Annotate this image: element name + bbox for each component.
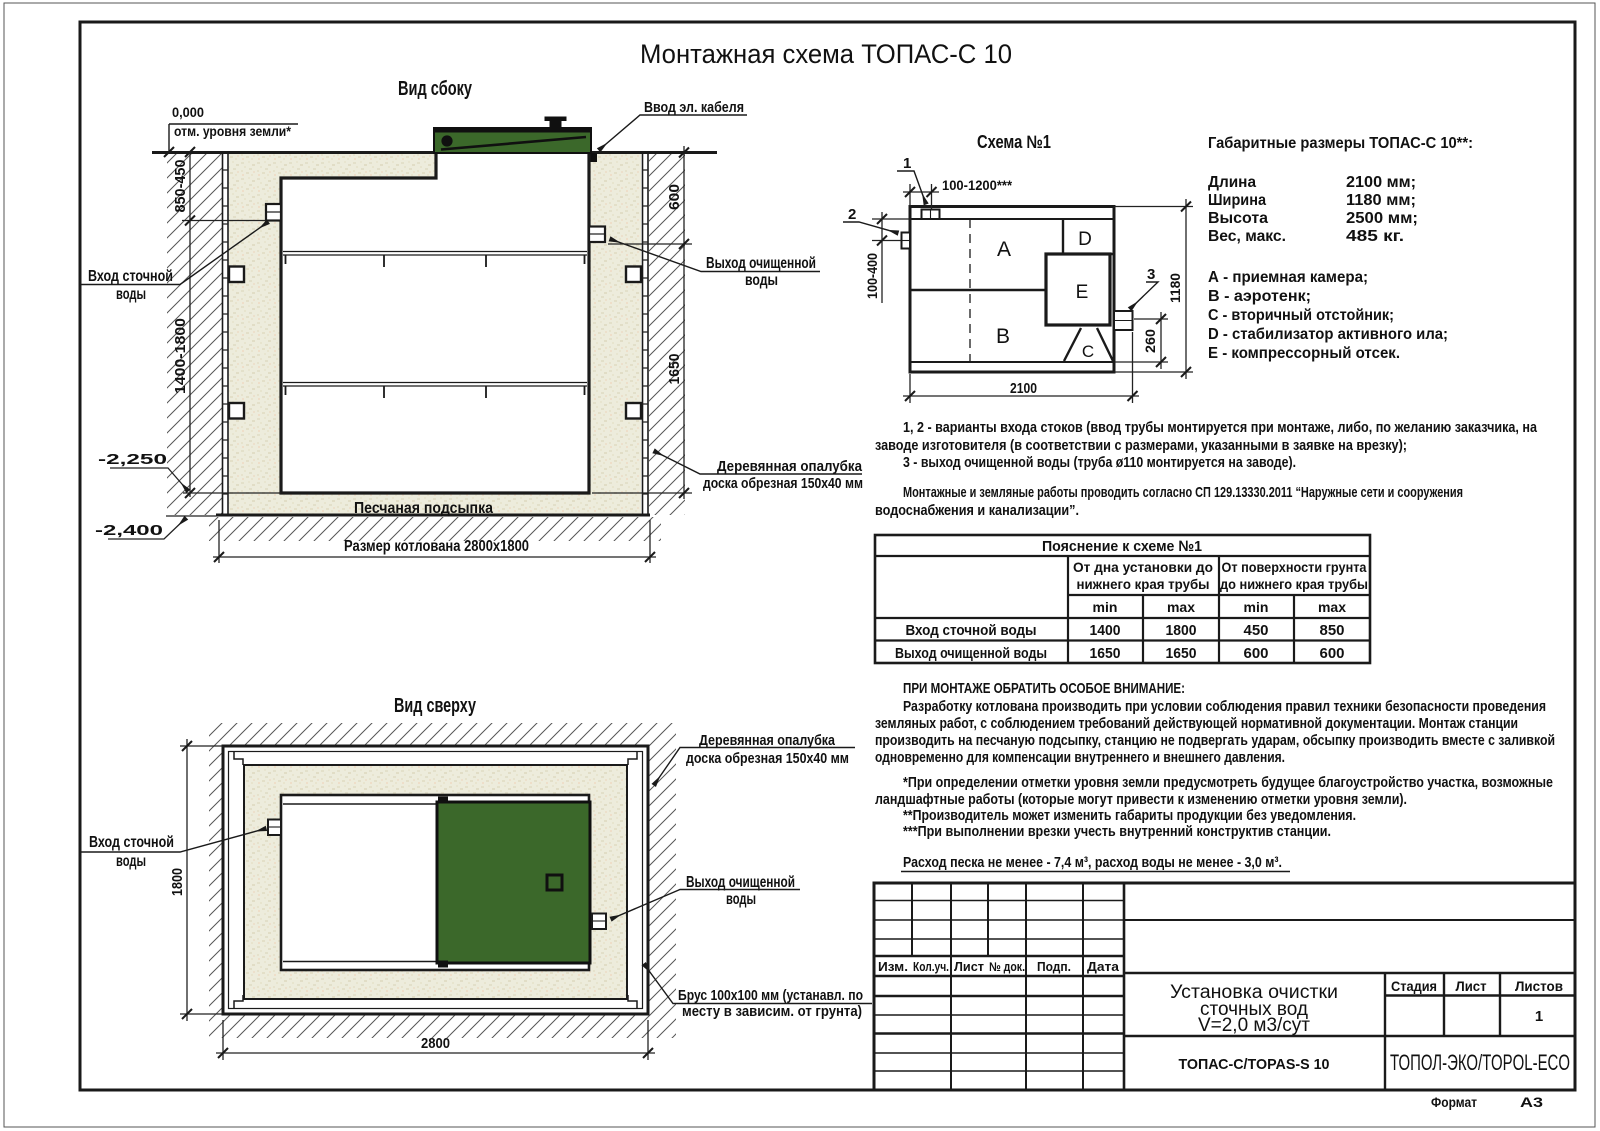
svg-text:Ширина: Ширина [1208, 192, 1266, 209]
svg-text:Монтажная схема ТОПАС-С 10: Монтажная схема ТОПАС-С 10 [640, 39, 1012, 69]
svg-text:Габаритные размеры ТОПАС-С 10*: Габаритные размеры ТОПАС-С 10**: [1208, 135, 1473, 152]
svg-text:100-400: 100-400 [864, 253, 880, 299]
svg-text:*При определении отметки уровн: *При определении отметки уровня земли пр… [903, 774, 1553, 791]
svg-text:А3: А3 [1520, 1094, 1543, 1110]
svg-text:1: 1 [1535, 1008, 1543, 1025]
svg-text:Расход песка не менее - 7,4 м³: Расход песка не менее - 7,4 м³, расход в… [903, 854, 1282, 871]
svg-text:Размер котлована 2800х1800: Размер котлована 2800х1800 [344, 538, 529, 555]
svg-text:Схема №1: Схема №1 [977, 132, 1051, 152]
svg-text:Вход сточной воды: Вход сточной воды [906, 622, 1037, 639]
svg-text:1180 мм;: 1180 мм; [1346, 192, 1416, 209]
svg-text:E: E [1076, 282, 1089, 303]
svg-text:Вид сверху: Вид сверху [394, 695, 477, 717]
svg-text:Формат: Формат [1431, 1094, 1477, 1110]
svg-text:2800: 2800 [421, 1035, 450, 1052]
svg-text:В - аэротенк;: В - аэротенк; [1208, 288, 1311, 305]
svg-text:850: 850 [1320, 622, 1345, 639]
svg-text:1400: 1400 [1090, 622, 1121, 639]
svg-text:воды: воды [726, 891, 756, 908]
svg-text:Выход очищенной: Выход очищенной [706, 255, 816, 272]
svg-text:A: A [997, 238, 1011, 261]
svg-text:C: C [1082, 342, 1094, 361]
svg-text:доска обрезная 150х40 мм: доска обрезная 150х40 мм [703, 475, 863, 492]
svg-text:1650: 1650 [1090, 645, 1121, 662]
svg-text:3: 3 [1147, 266, 1155, 283]
svg-text:3 - выход очищенной воды (труб: 3 - выход очищенной воды (труба ø110 мон… [903, 454, 1296, 471]
svg-text:От поверхности грунта: От поверхности грунта [1222, 559, 1367, 575]
svg-text:2100 мм;: 2100 мм; [1346, 174, 1416, 191]
svg-text:Вход сточной: Вход сточной [89, 834, 174, 851]
svg-text:***При выполнении врезки учест: ***При выполнении врезки учесть внутренн… [903, 823, 1331, 840]
svg-text:1650: 1650 [1166, 645, 1197, 662]
svg-text:Вес, макс.: Вес, макс. [1208, 228, 1286, 245]
svg-text:600: 600 [666, 184, 683, 210]
svg-text:доска обрезная 150х40 мм: доска обрезная 150х40 мм [686, 750, 849, 767]
svg-text:min: min [1244, 599, 1269, 615]
svg-text:одновременно для компенсации в: одновременно для компенсации внутреннего… [875, 749, 1285, 766]
svg-text:А - приемная камера;: А - приемная камера; [1208, 269, 1368, 286]
svg-text:Вход сточной: Вход сточной [88, 268, 173, 285]
svg-text:Песчаная подсыпка: Песчаная подсыпка [354, 500, 493, 517]
svg-text:2500 мм;: 2500 мм; [1346, 210, 1418, 227]
svg-text:B: B [996, 325, 1010, 348]
svg-text:1800: 1800 [1166, 622, 1197, 639]
svg-text:Высота: Высота [1208, 210, 1268, 227]
svg-text:Дата: Дата [1087, 960, 1120, 974]
svg-text:1180: 1180 [1167, 273, 1183, 303]
svg-text:до нижнего края трубы: до нижнего края трубы [1220, 576, 1368, 592]
svg-text:Подп.: Подп. [1037, 960, 1071, 974]
svg-text:max: max [1167, 599, 1195, 615]
svg-text:D: D [1078, 229, 1092, 250]
svg-text:0,000: 0,000 [172, 104, 204, 120]
svg-text:600: 600 [1244, 645, 1269, 662]
svg-text:отм. уровня земли*: отм. уровня земли* [174, 123, 291, 139]
svg-text:№ док.: № док. [989, 960, 1025, 974]
svg-text:воды: воды [116, 853, 146, 870]
svg-text:Выход очищенной воды: Выход очищенной воды [895, 645, 1047, 662]
svg-text:**Производитель может изменить: **Производитель может изменить габариты … [903, 807, 1356, 824]
svg-text:Е - компрессорный отсек.: Е - компрессорный отсек. [1208, 345, 1400, 362]
svg-text:воды: воды [745, 272, 778, 289]
svg-text:2: 2 [848, 206, 856, 223]
svg-text:месту в зависим. от грунта): месту в зависим. от грунта) [682, 1003, 862, 1020]
svg-text:водоснабжения и канализации”.: водоснабжения и канализации”. [875, 502, 1079, 519]
svg-text:1400-1800: 1400-1800 [172, 318, 189, 394]
svg-text:max: max [1318, 599, 1346, 615]
svg-text:воды: воды [116, 286, 146, 303]
svg-text:600: 600 [1320, 645, 1345, 662]
svg-text:Лист: Лист [1456, 978, 1487, 994]
svg-text:производить на песчаную подсып: производить на песчаную подсыпку, станци… [875, 732, 1555, 749]
svg-text:С - вторичный отстойник;: С - вторичный отстойник; [1208, 307, 1394, 324]
svg-text:Деревянная опалубка: Деревянная опалубка [717, 458, 863, 475]
svg-text:Вид сбоку: Вид сбоку [398, 78, 473, 100]
svg-text:-2,400: -2,400 [95, 522, 163, 539]
svg-text:Стадия: Стадия [1391, 978, 1437, 994]
svg-text:V=2,0 м3/сут: V=2,0 м3/сут [1198, 1015, 1310, 1036]
svg-text:100-1200***: 100-1200*** [942, 177, 1013, 193]
svg-text:850-450: 850-450 [172, 160, 189, 213]
svg-text:заводе изготовителя (в соответ: заводе изготовителя (в соответствии с ра… [875, 437, 1407, 454]
svg-text:Монтажные и земляные работы пр: Монтажные и земляные работы проводить со… [903, 484, 1463, 501]
svg-text:485 кг.: 485 кг. [1346, 228, 1404, 245]
svg-text:ТОПАС-С/TOPAS-S 10: ТОПАС-С/TOPAS-S 10 [1179, 1056, 1330, 1073]
svg-text:Выход очищенной: Выход очищенной [686, 874, 795, 891]
svg-text:1, 2 - варианты входа стоков: 1, 2 - варианты входа стоков (ввод трубы… [903, 419, 1538, 436]
svg-text:Листов: Листов [1515, 978, 1563, 994]
svg-text:-2,250: -2,250 [98, 451, 167, 468]
svg-text:Лист: Лист [954, 960, 984, 974]
svg-text:450: 450 [1244, 622, 1269, 639]
svg-text:нижнего края трубы: нижнего края трубы [1077, 576, 1210, 592]
svg-text:От дна установки до: От дна установки до [1073, 559, 1213, 575]
svg-text:Ввод эл. кабеля: Ввод эл. кабеля [644, 99, 744, 116]
svg-text:Длина: Длина [1208, 174, 1256, 191]
svg-text:ТОПОЛ-ЭКО/TOPOL-ECO: ТОПОЛ-ЭКО/TOPOL-ECO [1390, 1050, 1570, 1075]
svg-text:ландшафтные работы (которые мо: ландшафтные работы (которые могут привес… [875, 791, 1407, 808]
svg-text:Пояснение к схеме №1: Пояснение к схеме №1 [1042, 538, 1202, 555]
svg-text:ПРИ МОНТАЖЕ ОБРАТИТЬ ОСОБОЕ ВН: ПРИ МОНТАЖЕ ОБРАТИТЬ ОСОБОЕ ВНИМАНИЕ: [903, 680, 1185, 697]
svg-text:Кол.уч.: Кол.уч. [913, 960, 949, 974]
svg-text:Деревянная опалубка: Деревянная опалубка [699, 732, 836, 749]
svg-text:D - стабилизатор активного ила: D - стабилизатор активного ила; [1208, 326, 1448, 343]
svg-text:1: 1 [903, 155, 911, 172]
svg-text:земляных работ, с соблюдением: земляных работ, с соблюдением требований… [875, 715, 1518, 732]
svg-text:1800: 1800 [169, 868, 186, 896]
svg-text:2100: 2100 [1010, 380, 1037, 397]
svg-text:1650: 1650 [666, 354, 683, 385]
svg-text:Разработку котлована производи: Разработку котлована производить при усл… [903, 698, 1546, 715]
svg-text:min: min [1093, 599, 1118, 615]
svg-text:Изм.: Изм. [878, 960, 908, 974]
svg-text:Брус 100х100 мм (устанавл. по: Брус 100х100 мм (устанавл. по [678, 987, 863, 1004]
svg-text:260: 260 [1142, 329, 1158, 353]
